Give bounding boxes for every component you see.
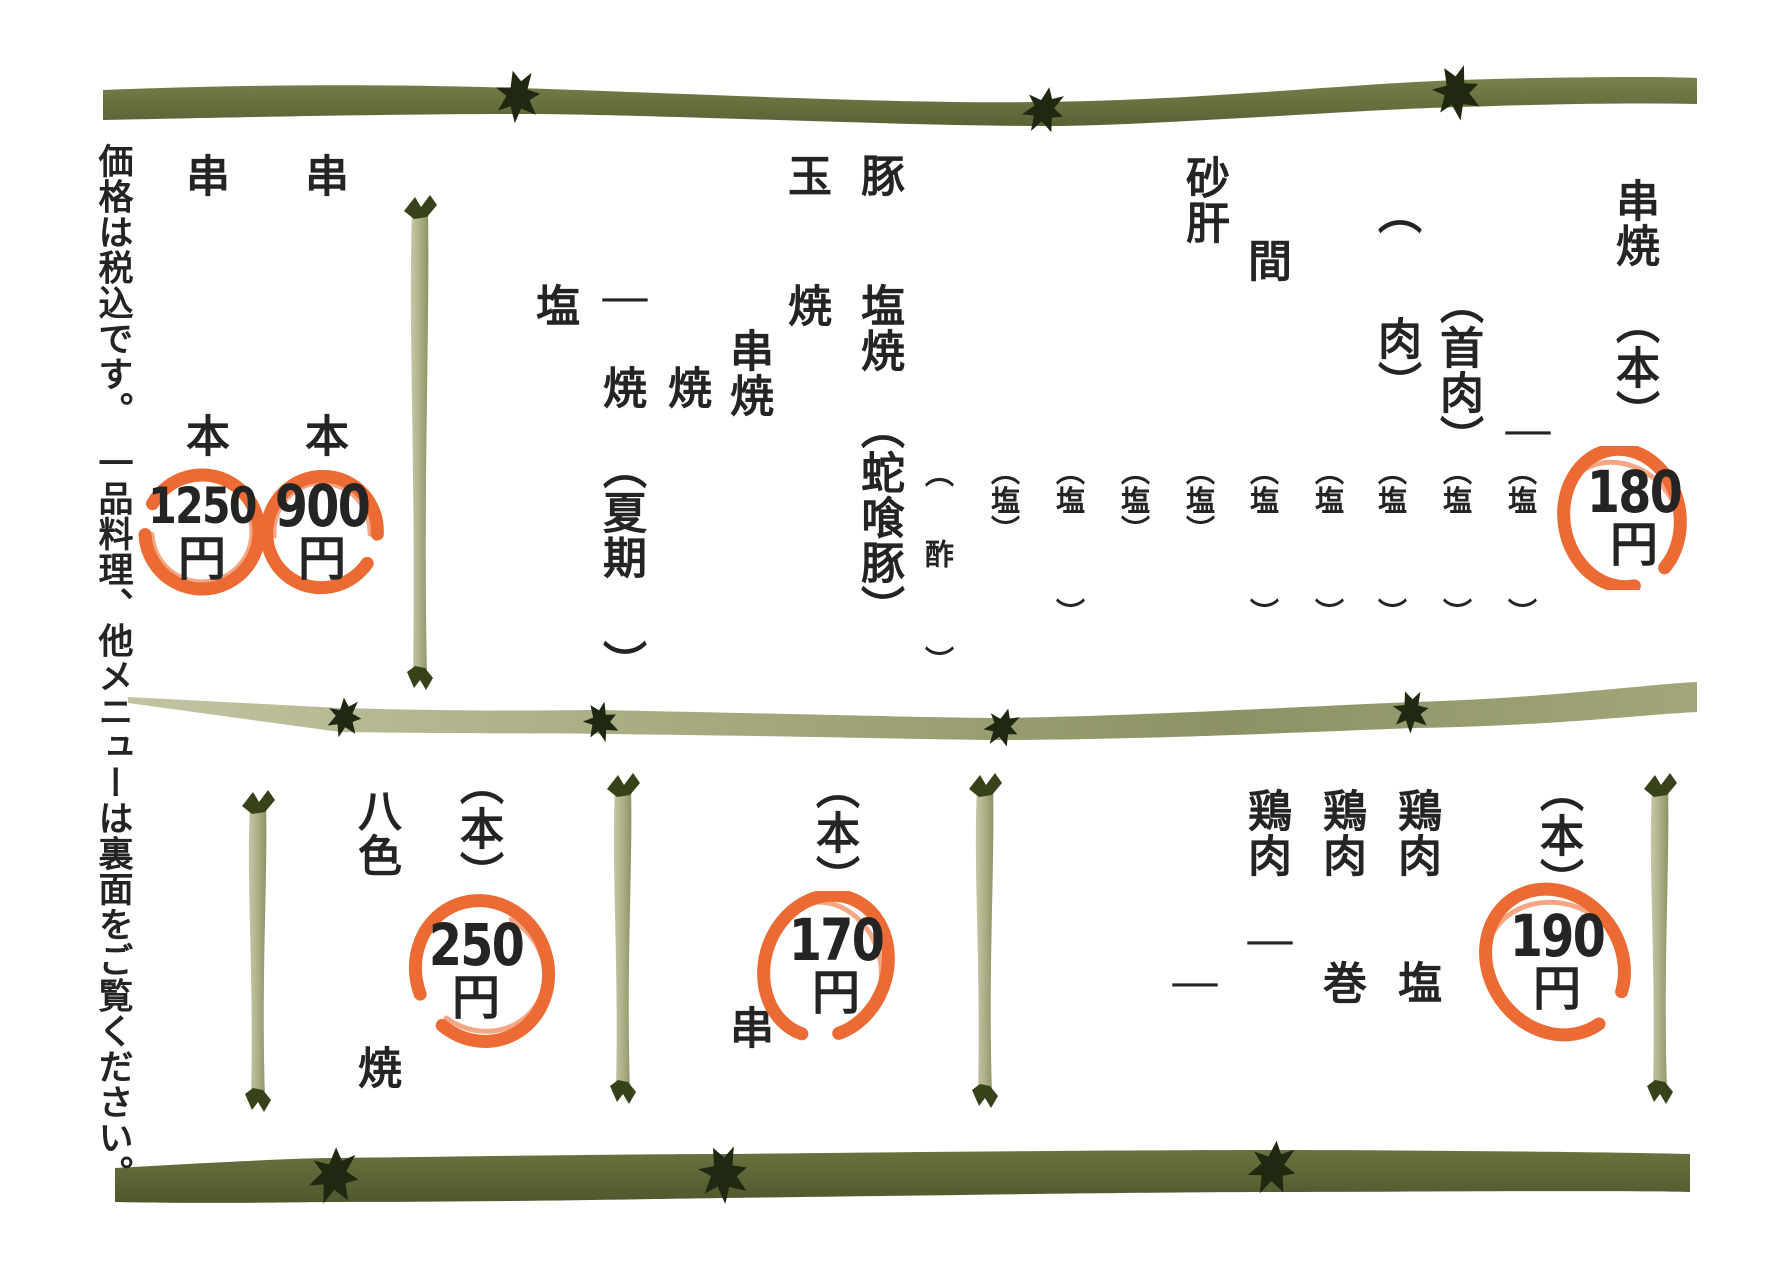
note-shio-8-close: ︶ <box>1441 598 1470 628</box>
note-shio-5-close: ︶ <box>1248 598 1277 628</box>
item-yaki-natsuki: 焼 <box>598 365 642 410</box>
item-shio: 塩 <box>531 283 575 328</box>
price-stamp-190: 190円 <box>1465 882 1645 1042</box>
price-stamp-170: 170円 <box>740 891 912 1041</box>
price-unit: 円 <box>264 533 379 585</box>
item-dash-3: ｜ <box>1168 963 1212 1008</box>
item-sunagimo: 砂肝 <box>1181 155 1225 245</box>
note-shio-9-close: ︶ <box>1506 598 1535 628</box>
item-aida: 間 <box>1243 238 1287 283</box>
price-unit: 円 <box>418 972 533 1024</box>
item-kushi-2: 串 <box>300 153 344 198</box>
note-shio-5: ︵塩 <box>1248 456 1277 515</box>
item-dash: ｜ <box>598 278 642 323</box>
price-value: 190 <box>1510 909 1604 963</box>
item-yairo-yaki: 焼 <box>353 1045 397 1090</box>
note-kaki-close: ︶ <box>598 640 642 685</box>
note-shio-2: ︵塩 <box>1054 456 1083 515</box>
price-unit: 円 <box>778 967 893 1019</box>
note-shio-6-close: ︶ <box>1313 598 1342 628</box>
price-stamp-180: 180円 <box>1539 446 1705 590</box>
note-shio-7: ︵塩 <box>1376 456 1405 515</box>
item-toriniku-1: 鶏肉 <box>1243 788 1287 878</box>
tax-notice: 価格は税込です。 一品料理、他メニューは裏面をご覧ください。 <box>95 143 130 1191</box>
item-toriniku-maki: 巻 <box>1318 960 1362 1005</box>
bamboo-skewer <box>1644 773 1677 1104</box>
unit-hon-1: 本 <box>181 413 225 458</box>
price-unit: 円 <box>136 533 267 585</box>
item-yaki: 焼 <box>663 365 707 410</box>
note-shio-2-close: ︶ <box>1054 598 1083 628</box>
note-su-close: ︶ <box>923 646 952 676</box>
unit-per-stick-250: ︵本︶ <box>455 761 499 896</box>
bottom-bamboo-border <box>115 1135 1690 1211</box>
note-shio-1: ︵塩︶ <box>989 456 1018 545</box>
note-su-open: ︵ <box>923 458 952 488</box>
note-niku-close: 肉︶ <box>1373 316 1417 406</box>
note-kubiniku: ︵首肉︶ <box>1435 280 1479 460</box>
bamboo-skewer <box>969 773 1002 1108</box>
item-toriniku-3: 鶏肉 <box>1393 788 1437 878</box>
unit-per-stick-170: ︵本︶ <box>811 765 855 900</box>
item-toriniku-1-dash: ｜ <box>1243 921 1287 966</box>
middle-bamboo-divider <box>128 682 1697 754</box>
price-value: 170 <box>789 913 883 967</box>
menu-page: 価格は税込です。 一品料理、他メニューは裏面をご覧ください。 串本串本塩｜焼︵夏… <box>0 0 1790 1276</box>
price-stamp-900: 900円 <box>253 462 391 602</box>
item-buta: 豚 <box>856 153 900 198</box>
price-stamp-1250: 1250円 <box>131 461 273 603</box>
bamboo-skewer <box>607 773 640 1104</box>
price-unit: 円 <box>1499 963 1614 1015</box>
item-yairo: 八色 <box>353 788 397 878</box>
heading-per-stick: ︵本︶ <box>1611 300 1655 435</box>
price-unit: 円 <box>1576 519 1691 571</box>
item-toriniku-shio: 塩 <box>1393 960 1437 1005</box>
note-shio-8: ︵塩 <box>1441 456 1470 515</box>
bamboo-skewer <box>404 195 437 690</box>
note-shio-9: ︵塩 <box>1506 456 1535 515</box>
note-kaki-open: ︵夏期 <box>598 445 642 580</box>
price-stamp-250: 250円 <box>402 886 562 1056</box>
note-su: 酢 <box>923 539 952 569</box>
item-tama: 玉 <box>783 153 827 198</box>
price-value: 900 <box>275 479 369 533</box>
item-kushi-1: 串 <box>181 153 225 198</box>
note-shio-7-close: ︶ <box>1376 598 1405 628</box>
price-value: 1250 <box>148 479 256 533</box>
note-jakuributa: ︵蛇喰豚︶ <box>856 405 900 630</box>
price-value: 250 <box>429 918 523 972</box>
item-tama-yaki: 焼 <box>783 283 827 328</box>
bamboo-skewer <box>242 790 275 1112</box>
item-toriniku-2: 鶏肉 <box>1318 788 1362 878</box>
top-bamboo-border <box>103 61 1697 141</box>
unit-hon-2: 本 <box>300 413 344 458</box>
note-shio-3: ︵塩︶ <box>1119 456 1148 545</box>
note-shio-4: ︵塩︶ <box>1184 456 1213 545</box>
note-shio-6: ︵塩 <box>1313 456 1342 515</box>
heading-kushiyaki: 串焼 <box>1611 178 1655 268</box>
price-value: 180 <box>1587 465 1681 519</box>
item-kushiyaki: 串焼 <box>725 328 769 418</box>
note-niku-open: ︵ <box>1373 190 1417 235</box>
item-buta-shioyaki: 塩焼 <box>856 283 900 373</box>
